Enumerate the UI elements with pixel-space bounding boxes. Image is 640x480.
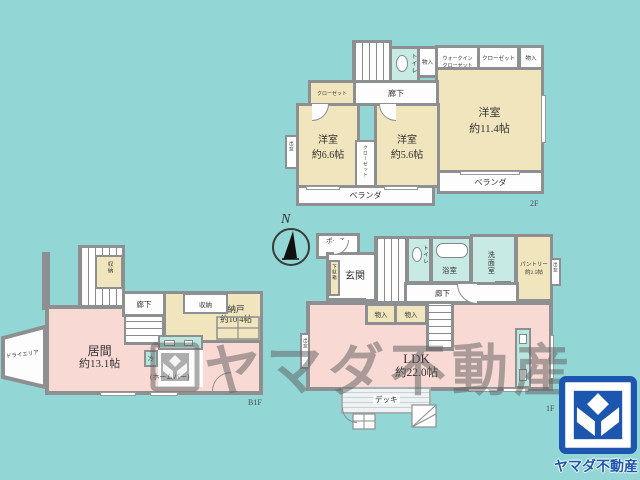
stove-icon (519, 369, 527, 381)
bay-window-label: 出窓 (289, 141, 294, 152)
floor-plan-image: トイレ 物入 ウォークイン クローゼット 約1.3帖 クローゼット 物入 洋室 … (0, 0, 640, 480)
closet-label: 収納 (106, 261, 113, 274)
room-name: LDK (395, 351, 438, 367)
compass-north-label: N (281, 212, 290, 229)
bay-window-2f: 出窓 (285, 135, 298, 169)
hallway-label: 廊下 (435, 289, 450, 298)
kitchen-counter-1f (515, 328, 531, 388)
bedroom-small-2f: 洋室 約6.6帖 (296, 103, 360, 188)
bay-window-label: 出窓 (303, 338, 308, 349)
bay-window-label: 出窓 (553, 262, 558, 273)
floor-label-2f: 2F (530, 199, 538, 208)
door-arc (342, 408, 357, 423)
shoe-cabinet-label: 下駄箱 (332, 264, 337, 281)
retaining-wall-b1f (42, 252, 50, 310)
room-name: 洋室 (479, 104, 501, 120)
pantry-1f: パントリー 約2.5帖 (515, 234, 553, 302)
room-name: 居間 (79, 344, 120, 358)
hallway-b1f: 廊下 (122, 291, 166, 317)
storage-label: 物入 (375, 309, 388, 319)
closet-label: クローゼット (317, 90, 347, 97)
veranda-label: ベランダ (350, 190, 382, 201)
storage-1f-a: 物入 (365, 303, 397, 325)
bathtub-icon (436, 243, 468, 258)
toilet-room-1f: トイレ (406, 236, 432, 284)
washroom-label: 洗面室 (487, 251, 495, 275)
bar-counter (158, 335, 203, 350)
window (306, 186, 340, 190)
closet-label: クローゼット (482, 54, 515, 62)
compass-circle (272, 228, 310, 266)
hallway-label: 廊下 (388, 88, 404, 99)
fridge-label: 冷 (148, 354, 154, 363)
closet-2f-center: クローゼット (355, 140, 376, 188)
storage-1f-b: 物入 (394, 303, 428, 325)
window (550, 335, 554, 379)
yamada-logo-icon (559, 376, 637, 454)
room-name: 洋室 (397, 131, 417, 146)
window (460, 171, 520, 175)
bay-window-1f-left: 出窓 (300, 333, 310, 369)
veranda-label: ベランダ (475, 177, 507, 188)
toilet-label: トイレ (421, 245, 428, 265)
wic-label-1: ウォークイン (442, 55, 472, 62)
bedroom-large-2f: 洋室 約11.4帖 (435, 67, 544, 173)
bay-window-1f-right: 出窓 (550, 258, 561, 286)
shoe-cabinet-1f: 下駄箱 (329, 260, 340, 296)
room-name: 洋室 (318, 131, 338, 146)
hallway-label: 廊下 (137, 299, 152, 310)
bathroom-label: 浴室 (442, 266, 457, 275)
closet-label: クローゼット (363, 145, 368, 178)
bathroom-1f: 浴室 (430, 236, 472, 284)
closet-b1f-top: 収納 (95, 255, 123, 289)
home-bar-label: (ホームバー) (150, 373, 189, 381)
stairs-1f-lower (426, 301, 454, 351)
storage-label: 物入 (525, 54, 536, 62)
compass-needle-icon (274, 230, 307, 263)
toilet-label-2f: トイレ (409, 53, 416, 74)
floor-label-b1f: B1F (248, 398, 262, 407)
window (384, 186, 418, 190)
pantry-label-1: パントリー (520, 260, 548, 268)
sink-icon (164, 340, 175, 346)
closet-label: 収納 (199, 299, 212, 309)
room-size: 約22.0帖 (395, 367, 438, 381)
storage-label: 物入 (422, 58, 433, 66)
brand-name: ヤマダ不動産 (548, 456, 640, 476)
sink-icon (184, 340, 193, 346)
room-size: 約13.1帖 (79, 358, 120, 371)
window (503, 388, 529, 392)
toilet-icon-2f (396, 55, 408, 72)
pantry-label-2: 約2.5帖 (525, 268, 543, 276)
window (468, 388, 498, 392)
closet-b1f-mid: 収納 (183, 293, 228, 314)
window (100, 392, 136, 396)
deck-corner-steps-icon (411, 404, 437, 428)
window (541, 95, 546, 143)
fridge-b1f: 冷 (144, 350, 158, 367)
room-size: 約5.6帖 (391, 146, 424, 161)
sink-icon (519, 334, 527, 344)
floor-label-1f: 1F (546, 404, 554, 413)
entrance-label: 玄関 (345, 271, 365, 283)
room-size: 約11.4帖 (469, 120, 510, 136)
room-size: 約6.6帖 (312, 146, 345, 161)
storage-label: 物入 (405, 309, 418, 319)
window (150, 392, 178, 396)
deck-label: デッキ (373, 395, 400, 404)
shelf-grid-icon (216, 316, 260, 340)
